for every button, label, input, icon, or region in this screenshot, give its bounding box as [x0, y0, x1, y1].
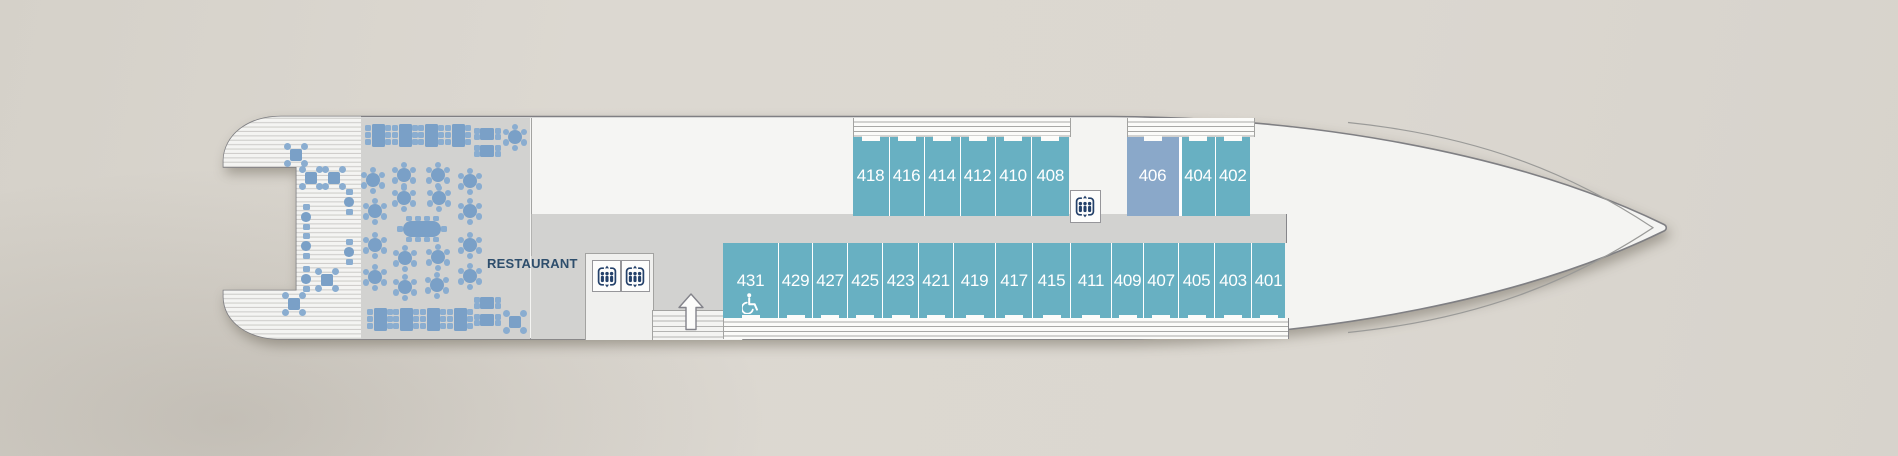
dining-table-duo2 [342, 239, 356, 266]
chair [284, 160, 291, 167]
dining-table-round6 [425, 244, 452, 271]
chair [385, 125, 391, 131]
chair [411, 289, 418, 296]
chair [346, 189, 353, 195]
elevator-right [621, 260, 650, 292]
chair [303, 233, 310, 239]
chair [521, 139, 528, 146]
chair [495, 134, 501, 139]
chair [365, 139, 371, 145]
chair [474, 320, 480, 325]
dining-table-round6 [457, 263, 484, 290]
cabin-number: 407 [1147, 271, 1174, 291]
dining-table-round6 [424, 272, 451, 299]
dining-table-cross4 [281, 291, 308, 318]
table-top [368, 270, 382, 284]
cabin-411[interactable]: 411 [1070, 243, 1111, 318]
dining-table-rect6 [447, 306, 473, 333]
chair [512, 145, 519, 152]
table-top [344, 247, 354, 257]
deck-plan: 418416414412410408 406404402 43142942742… [0, 0, 1898, 456]
table-top [344, 197, 354, 207]
chair [385, 132, 391, 138]
corridor [531, 214, 1288, 243]
balcony-door-notch [1119, 315, 1137, 320]
chair [381, 213, 388, 220]
chair [365, 132, 371, 138]
table-top [425, 124, 438, 147]
chair [445, 139, 451, 145]
cabin-number: 421 [922, 271, 949, 291]
balcony-door-notch [966, 315, 984, 320]
balcony-door-notch [821, 315, 839, 320]
chair [413, 316, 419, 322]
cabin-407[interactable]: 407 [1143, 243, 1178, 318]
chair [444, 259, 451, 266]
chair [367, 323, 373, 329]
chair [418, 132, 424, 138]
chair [467, 219, 474, 226]
cabin-number: 404 [1184, 166, 1211, 186]
balcony-strip-top-forward [1127, 118, 1256, 137]
dining-table-round6 [457, 232, 484, 259]
dining-table-oval10 [397, 215, 447, 243]
chair [495, 145, 501, 150]
chair [447, 309, 453, 315]
dining-table-round6 [457, 198, 484, 225]
chair [346, 259, 353, 265]
chair [410, 167, 417, 174]
balcony-door-notch [1041, 136, 1059, 141]
chair [433, 216, 439, 221]
cabin-418[interactable]: 418 [853, 137, 889, 216]
elevator-icon [1075, 195, 1095, 218]
chair [411, 260, 418, 267]
elevator-left [592, 260, 621, 292]
chair [303, 224, 310, 230]
table-top [431, 250, 445, 264]
balcony-door-notch [1043, 315, 1061, 320]
chair [299, 309, 306, 316]
chair [520, 327, 527, 334]
chair [445, 190, 452, 197]
cabin-421[interactable]: 421 [918, 243, 953, 318]
table-top [305, 172, 316, 183]
chair [413, 323, 419, 329]
table-top [452, 124, 465, 147]
chair [474, 303, 480, 308]
dining-table-duo2 [299, 233, 313, 260]
chair [332, 268, 339, 275]
chair [476, 213, 483, 220]
balcony-door-notch [862, 136, 880, 141]
cabin-417[interactable]: 417 [995, 243, 1032, 318]
table-top [372, 124, 385, 147]
chair [495, 297, 501, 302]
chair [418, 125, 424, 131]
balcony-strip-bottom [723, 318, 1289, 339]
balcony-door-notch [1144, 136, 1162, 141]
chair [392, 125, 398, 131]
chair [303, 204, 310, 210]
table-top [480, 297, 494, 309]
chair [495, 314, 501, 319]
dining-table-rect6 [445, 122, 471, 149]
cabin-number: 419 [961, 271, 988, 291]
balcony-door-notch [927, 315, 945, 320]
cabin-410[interactable]: 410 [995, 137, 1031, 216]
dining-table-rect6 [393, 306, 419, 333]
up-arrow-icon [678, 293, 704, 331]
chair [393, 309, 399, 315]
cabin-414[interactable]: 414 [924, 137, 960, 216]
chair [424, 237, 430, 242]
balcony-door-notch [1152, 315, 1170, 320]
table-top [432, 191, 446, 205]
cabin-number: 408 [1037, 166, 1064, 186]
chair [465, 132, 471, 138]
cabin-405[interactable]: 405 [1178, 243, 1214, 318]
chair [476, 237, 483, 244]
table-top [290, 149, 301, 160]
chair [381, 247, 388, 254]
chair [495, 303, 501, 308]
chair [424, 216, 430, 221]
cabin-number: 427 [816, 271, 843, 291]
chair [520, 310, 527, 317]
chair [392, 139, 398, 145]
chair [401, 206, 408, 213]
chair [495, 128, 501, 133]
chair [381, 279, 388, 286]
cabin-number: 411 [1078, 271, 1104, 291]
chair [370, 188, 377, 195]
chair [381, 237, 388, 244]
table-top [463, 204, 477, 218]
chair [474, 145, 480, 150]
table-top [509, 316, 520, 327]
dining-table-round6 [391, 185, 418, 212]
table-top [431, 168, 445, 182]
dining-table-round6 [362, 198, 389, 225]
cabin-number: 409 [1114, 271, 1141, 291]
chair [420, 316, 426, 322]
chair [379, 182, 386, 189]
chair [445, 200, 452, 207]
table-top [480, 145, 494, 157]
chair [367, 309, 373, 315]
balcony-door-notch [1005, 315, 1023, 320]
balcony-door-notch [1004, 136, 1022, 141]
chair [476, 173, 483, 180]
balcony-door-notch [1188, 315, 1206, 320]
aft-deck-planks [197, 110, 361, 350]
chair [406, 237, 412, 242]
cabin-427[interactable]: 427 [812, 243, 847, 318]
chair [440, 316, 446, 322]
dining-table-round6 [362, 232, 389, 259]
dining-table-round6 [392, 274, 419, 301]
chair [436, 206, 443, 213]
balcony-door-notch [1224, 136, 1242, 141]
chair [406, 216, 412, 221]
dining-table-rect6 [365, 122, 391, 149]
chair [393, 323, 399, 329]
chair [393, 316, 399, 322]
dining-table-cross4 [314, 267, 341, 294]
dining-table-rect4 [473, 128, 501, 141]
chair [303, 286, 310, 292]
service-room [531, 118, 855, 215]
chair [465, 125, 471, 131]
table-top [430, 278, 444, 292]
chair [443, 277, 450, 284]
cabin-number: 406 [1139, 166, 1166, 186]
cabin-403[interactable]: 403 [1214, 243, 1251, 318]
table-top [301, 212, 311, 222]
cabin-415[interactable]: 415 [1032, 243, 1070, 318]
chair [521, 129, 528, 136]
cabin-number: 403 [1219, 271, 1246, 291]
dining-table-round6 [360, 167, 387, 194]
cabin-408[interactable]: 408 [1031, 137, 1070, 216]
chair [467, 253, 474, 260]
chair [411, 250, 418, 257]
chair [413, 309, 419, 315]
chair [415, 216, 421, 221]
chair [434, 293, 441, 300]
cabin-423[interactable]: 423 [882, 243, 918, 318]
cabin-number: 418 [857, 166, 884, 186]
dining-table-cross4 [321, 165, 348, 192]
chair [445, 125, 451, 131]
dining-table-rect6 [418, 122, 444, 149]
cabin-number: 410 [999, 166, 1026, 186]
chair [433, 237, 439, 242]
elevator-icon [625, 265, 645, 288]
chair [440, 323, 446, 329]
chair [410, 190, 417, 197]
chair [346, 239, 353, 245]
chair [474, 314, 480, 319]
cabin-404[interactable]: 404 [1179, 137, 1215, 216]
table-top [463, 174, 477, 188]
cabin-402[interactable]: 402 [1215, 137, 1251, 216]
cabin-416[interactable]: 416 [889, 137, 924, 216]
cabin-number: 416 [893, 166, 920, 186]
balcony-door-notch [1224, 315, 1242, 320]
dining-table-duo2 [299, 266, 313, 293]
cabin-number: 401 [1255, 271, 1282, 291]
chair [299, 292, 306, 299]
balcony-strip-top-aft [853, 118, 1071, 137]
dining-table-cross4 [502, 309, 529, 336]
table-top [463, 238, 477, 252]
dining-table-rect4 [473, 297, 501, 310]
balcony-door-notch [892, 315, 910, 320]
cabin-number: 405 [1183, 271, 1210, 291]
chair [438, 125, 444, 131]
cabin-412[interactable]: 412 [960, 137, 995, 216]
dining-table-duo2 [299, 204, 313, 231]
dining-table-rect6 [420, 306, 446, 333]
dining-table-round6 [457, 168, 484, 195]
chair [474, 134, 480, 139]
chair [476, 203, 483, 210]
chair [447, 323, 453, 329]
chair [476, 278, 483, 285]
cabin-419[interactable]: 419 [953, 243, 995, 318]
table-top [368, 238, 382, 252]
table-top [480, 128, 494, 140]
chair [467, 284, 474, 291]
cabin-425[interactable]: 425 [847, 243, 882, 318]
balcony-door-notch [856, 315, 874, 320]
chair [332, 285, 339, 292]
table-top [398, 280, 412, 294]
chair [495, 151, 501, 156]
table-top [454, 308, 467, 331]
dining-table-rect4 [473, 314, 501, 327]
table-top [301, 241, 311, 251]
cabin-number: 415 [1038, 271, 1065, 291]
cabin-row-top-forward: 406404402 [1127, 137, 1251, 216]
chair [445, 132, 451, 138]
table-top [368, 204, 382, 218]
chair [402, 295, 409, 302]
chair [441, 226, 447, 231]
balcony-door-notch [969, 136, 987, 141]
table-top [301, 274, 311, 284]
chair [474, 297, 480, 302]
chair [465, 139, 471, 145]
table-top [374, 308, 387, 331]
balcony-door-notch [1260, 315, 1278, 320]
chair [303, 253, 310, 259]
elevator-forward [1070, 190, 1101, 223]
balcony-door-notch [787, 315, 805, 320]
cabin-number: 431 [737, 271, 764, 291]
cabin-number: 429 [782, 271, 809, 291]
chair [503, 327, 510, 334]
chair [367, 316, 373, 322]
chair [474, 151, 480, 156]
chair [381, 203, 388, 210]
cabin-401[interactable]: 401 [1251, 243, 1285, 318]
chair [476, 268, 483, 275]
chair [444, 249, 451, 256]
chair [392, 132, 398, 138]
chair [385, 139, 391, 145]
chair [447, 316, 453, 322]
cabin-409[interactable]: 409 [1111, 243, 1143, 318]
chair [444, 177, 451, 184]
dining-table-round6 [362, 264, 389, 291]
dining-table-duo2 [342, 189, 356, 216]
chair [476, 183, 483, 190]
table-top [400, 308, 413, 331]
dining-table-rect6 [367, 306, 393, 333]
chair [410, 200, 417, 207]
table-top [508, 130, 522, 144]
cabin-number: 402 [1219, 166, 1246, 186]
chair [322, 183, 329, 190]
chair [365, 125, 371, 131]
table-top [480, 314, 494, 326]
cabin-row-bottom: 4314294274254234214194174154114094074054… [723, 243, 1285, 318]
chair [402, 266, 409, 273]
chair [474, 128, 480, 133]
cabin-406[interactable]: 406 [1127, 137, 1179, 216]
table-top [398, 251, 412, 265]
table-top [328, 172, 339, 183]
wheelchair-icon [742, 293, 760, 314]
table-top [463, 269, 477, 283]
cabin-number: 425 [851, 271, 878, 291]
dining-table-rect6 [392, 122, 418, 149]
chair [381, 269, 388, 276]
balcony-door-notch [1189, 136, 1207, 141]
cabin-number: 412 [964, 166, 991, 186]
chair [420, 323, 426, 329]
chair [372, 253, 379, 260]
table-top [403, 221, 441, 237]
balcony-door-notch [933, 136, 951, 141]
restaurant-wall [531, 214, 532, 256]
chair [418, 139, 424, 145]
chair [372, 219, 379, 226]
dining-table-round6 [502, 124, 529, 151]
chair [372, 285, 379, 292]
chair [420, 309, 426, 315]
dining-table-round6 [392, 245, 419, 272]
chair [438, 132, 444, 138]
table-top [366, 173, 380, 187]
table-top [399, 124, 412, 147]
chair [346, 209, 353, 215]
cabin-number: 414 [928, 166, 955, 186]
balcony-door-notch [1082, 315, 1100, 320]
chair [410, 177, 417, 184]
balcony-door-notch [898, 136, 916, 141]
cabin-431[interactable]: 431 [723, 243, 778, 318]
chair [315, 285, 322, 292]
chair [440, 309, 446, 315]
chair [303, 266, 310, 272]
chair [299, 183, 306, 190]
cabin-row-top-aft: 418416414412410408 [853, 137, 1070, 216]
chair [282, 309, 289, 316]
elevator-icon [597, 265, 617, 288]
chair [339, 166, 346, 173]
chair [301, 143, 308, 150]
chair [467, 189, 474, 196]
cabin-429[interactable]: 429 [778, 243, 812, 318]
dining-table-round6 [426, 185, 453, 212]
chair [435, 265, 442, 272]
table-top [288, 298, 299, 309]
chair [443, 287, 450, 294]
chair [476, 247, 483, 254]
chair [438, 139, 444, 145]
cabin-number: 417 [1000, 271, 1027, 291]
table-top [397, 168, 411, 182]
table-top [397, 191, 411, 205]
restaurant-label: RESTAURANT [487, 256, 578, 271]
chair [495, 320, 501, 325]
chair [379, 172, 386, 179]
table-top [427, 308, 440, 331]
